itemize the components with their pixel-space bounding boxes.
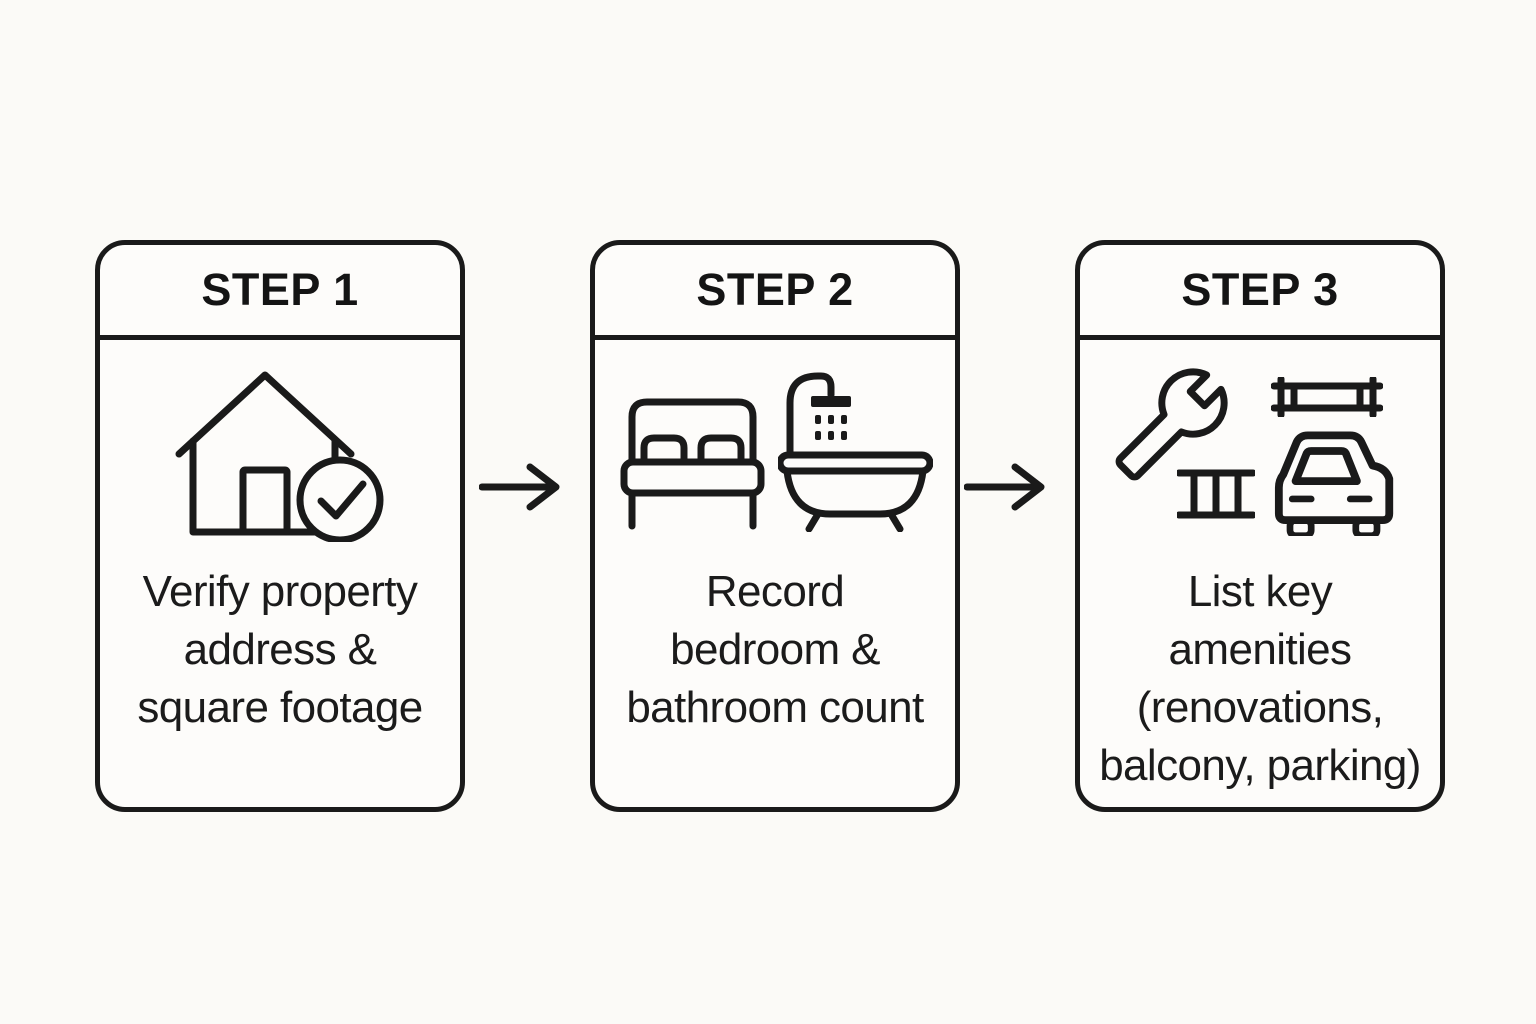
balcony-railing-icon xyxy=(1271,377,1383,417)
property-listing-steps-diagram: STEP 1 Verify property address & square … xyxy=(0,0,1536,1024)
step-2-icon-zone xyxy=(620,367,930,535)
step-3-caption: List key amenities (renovations, balcony… xyxy=(1080,563,1440,795)
step-3-icon-zone xyxy=(1113,367,1408,535)
house-check-icon xyxy=(175,367,385,542)
step-card-1: STEP 1 Verify property address & square … xyxy=(95,240,465,812)
shower-head xyxy=(811,396,851,407)
step-1-icon-zone xyxy=(175,367,385,535)
step-3-header-label: STEP 3 xyxy=(1181,264,1338,316)
check-circle xyxy=(300,460,380,540)
tub-rim xyxy=(780,455,930,471)
step-1-header-label: STEP 1 xyxy=(201,264,358,316)
caption-line: (renovations, xyxy=(1080,679,1440,737)
step-3-header: STEP 3 xyxy=(1080,245,1440,340)
mattress xyxy=(624,462,761,493)
car-windshield xyxy=(1295,451,1356,481)
house-roof xyxy=(179,375,351,454)
step-1-caption: Verify property address & square footage xyxy=(100,563,460,737)
scaffold-icon xyxy=(1177,465,1255,523)
caption-line: balcony, parking) xyxy=(1080,737,1440,795)
bed-icon xyxy=(620,395,765,530)
caption-line: square footage xyxy=(100,679,460,737)
caption-line: address & xyxy=(100,621,460,679)
shower-bathtub-icon xyxy=(778,367,933,532)
tub-leg xyxy=(891,514,900,529)
step-2-header: STEP 2 xyxy=(595,245,955,340)
step-card-2: STEP 2 xyxy=(590,240,960,812)
car-icon xyxy=(1261,424,1406,536)
shower-pipe xyxy=(790,376,831,455)
pillow xyxy=(701,438,741,462)
step-1-header: STEP 1 xyxy=(100,245,460,340)
car-wheel xyxy=(1290,520,1311,536)
caption-line: bathroom count xyxy=(595,679,955,737)
right-arrow-icon xyxy=(479,463,563,511)
house-door xyxy=(243,470,287,532)
caption-line: List key xyxy=(1080,563,1440,621)
car-wheel xyxy=(1355,520,1376,536)
tub-body xyxy=(787,471,923,514)
right-arrow-icon xyxy=(964,463,1048,511)
caption-line: bedroom & xyxy=(595,621,955,679)
caption-line: Verify property xyxy=(100,563,460,621)
water-drops xyxy=(815,415,847,440)
step-2-header-label: STEP 2 xyxy=(696,264,853,316)
step-card-3: STEP 3 xyxy=(1075,240,1445,812)
tub-leg xyxy=(809,514,818,529)
pillow xyxy=(644,438,684,462)
caption-line: Record xyxy=(595,563,955,621)
caption-line: amenities xyxy=(1080,621,1440,679)
step-2-caption: Record bedroom & bathroom count xyxy=(595,563,955,737)
